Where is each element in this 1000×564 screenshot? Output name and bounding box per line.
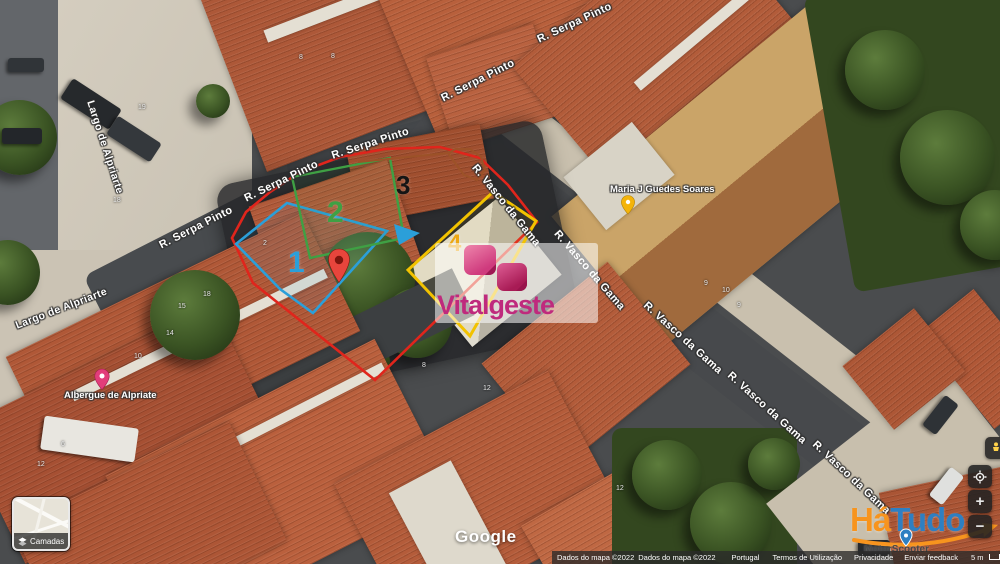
house-number: 12 (37, 461, 45, 468)
house-number: 8 (422, 362, 426, 369)
satellite-map-viewport[interactable]: 1 2 3 4 R. Serpa Pinto R. Serpa Pinto R.… (0, 0, 1000, 564)
pegman-icon (991, 442, 1000, 454)
map-controls (985, 437, 1000, 461)
layers-icon (18, 537, 27, 546)
poi-label-maria-j-guedes-soares[interactable]: Maria J Guedes Soares (610, 184, 715, 195)
vitalgeste-wordmark: Vitalgeste (437, 290, 554, 321)
map-data-credit: Dados do mapa ©2022 (638, 553, 715, 562)
tree (632, 440, 702, 510)
zoom-in-button[interactable]: + (968, 490, 992, 513)
house-number: 15 (178, 303, 186, 310)
house-number: 18 (203, 291, 211, 298)
google-logo[interactable]: Google (455, 527, 517, 547)
tree (900, 110, 995, 205)
parcel-label-1: 1 (288, 246, 305, 280)
vitalgeste-logo-square (464, 245, 496, 275)
hatudo-wordmark-ha: Há (850, 501, 890, 538)
house-number: 14 (166, 330, 174, 337)
scale-bar (989, 554, 1000, 560)
zoom-controls: + − (968, 465, 992, 540)
privacy-link[interactable]: Privacidade (854, 553, 893, 562)
layers-label-strip: Camadas (14, 533, 68, 549)
tree (196, 84, 230, 118)
country-label: Portugal (732, 553, 760, 562)
crosshair-icon (973, 470, 987, 484)
house-number: 18 (113, 197, 121, 204)
house-number: 6 (61, 441, 65, 448)
terms-link[interactable]: Termos de Utilização (772, 553, 842, 562)
zoom-out-button[interactable]: − (968, 515, 992, 538)
hatudo-wordmark-tudo: Tudo (890, 501, 964, 538)
house-number: 8 (331, 53, 335, 60)
house-number: 8 (299, 54, 303, 61)
parcel-label-2: 2 (327, 196, 344, 230)
layers-label: Camadas (30, 537, 64, 546)
house-number: 19 (138, 104, 146, 111)
car (2, 128, 42, 144)
house-number: 12 (616, 485, 624, 492)
vitalgeste-watermark: Vitalgeste (435, 243, 598, 323)
tree (845, 30, 925, 110)
house-number: 9 (704, 280, 708, 287)
poi-label-albergue-de-alpriate[interactable]: Albergue de Alpriate (64, 390, 157, 401)
compass-button[interactable] (968, 465, 992, 488)
map-data-credit: Dados do mapa ©2022 (557, 553, 634, 562)
attribution-bar: Dados do mapa ©2022 Dados do mapa ©2022 … (552, 551, 1000, 564)
layers-button[interactable]: Camadas (12, 497, 70, 551)
scale-label: 5 m (971, 553, 984, 562)
tree (150, 270, 240, 360)
house-number: 12 (483, 385, 491, 392)
house-number: 2 (263, 240, 267, 247)
house-number: 9 (737, 302, 741, 309)
parcel-label-3: 3 (396, 170, 410, 201)
car (8, 58, 44, 72)
feedback-link[interactable]: Enviar feedback (904, 553, 958, 562)
vitalgeste-logo-square (497, 263, 527, 291)
house-number: 10 (722, 287, 730, 294)
house-number: 10 (134, 353, 142, 360)
pegman-button[interactable] (985, 437, 1000, 459)
